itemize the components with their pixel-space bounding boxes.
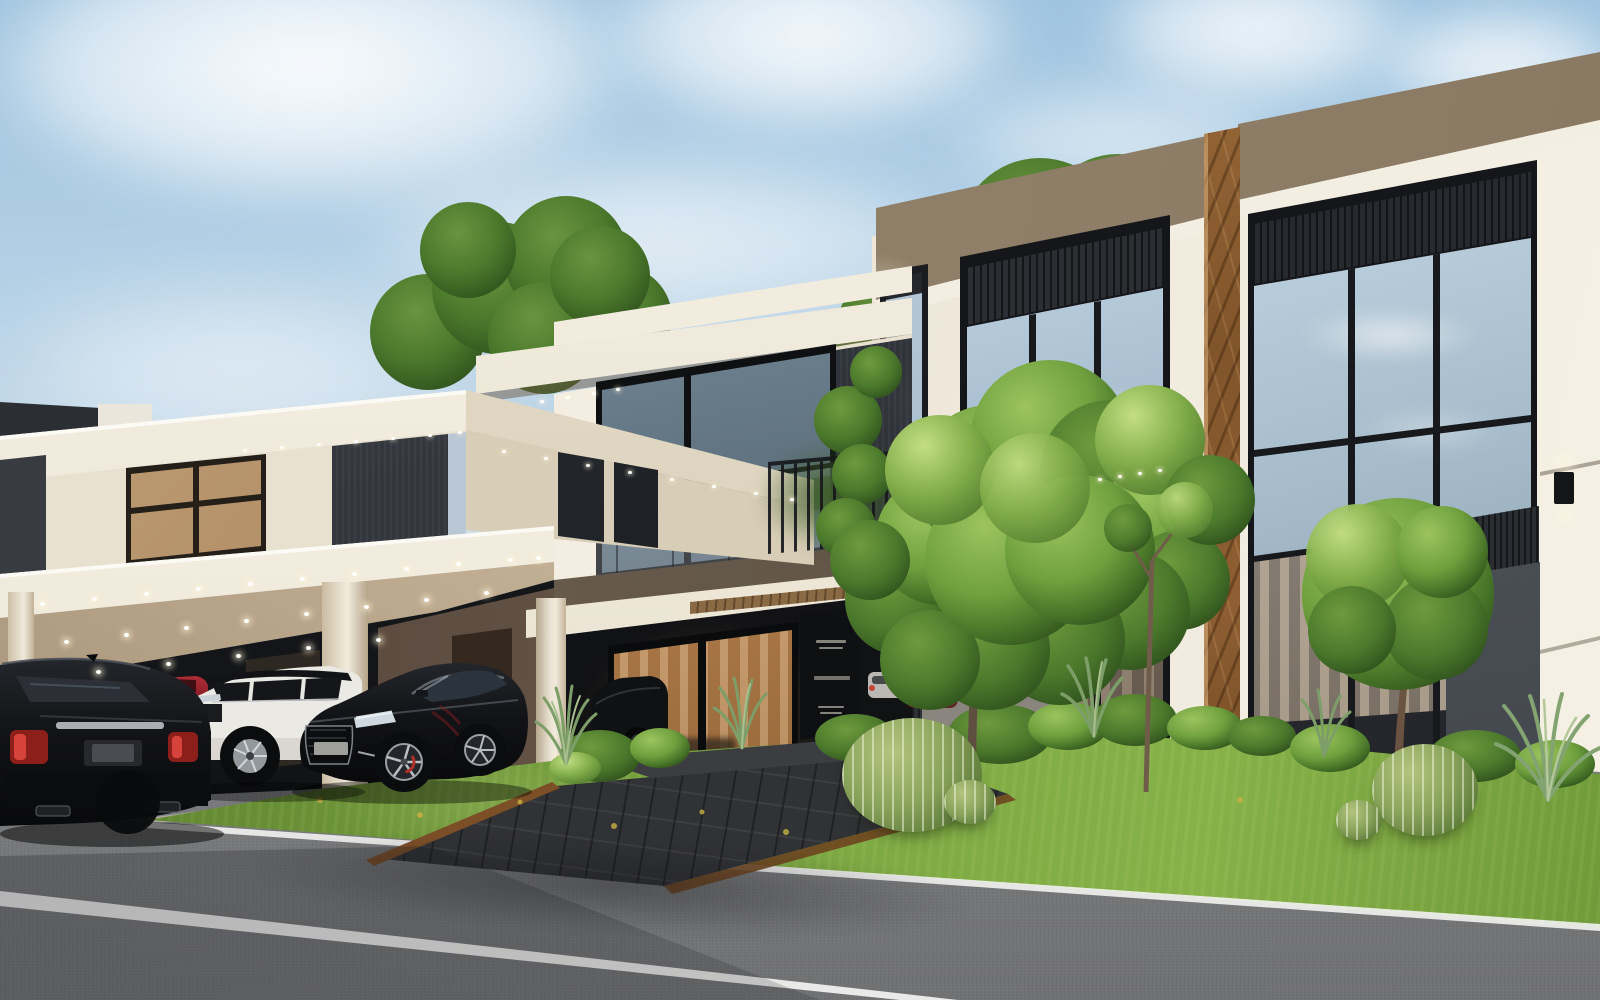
downlight: [1098, 478, 1102, 481]
coupe-body: [300, 663, 528, 782]
downlight: [616, 388, 620, 391]
downlight: [352, 572, 357, 576]
downlight: [248, 582, 253, 586]
downlight: [1158, 469, 1162, 472]
downlight: [670, 478, 674, 481]
downlight: [306, 646, 311, 650]
coupe-front-wheel: [374, 732, 434, 792]
carport-column: [322, 582, 368, 798]
downlight: [1138, 472, 1142, 475]
topiary-tree: [1302, 498, 1494, 772]
downlight: [166, 662, 171, 666]
coupe-headlight: [354, 712, 396, 728]
downlight: [40, 602, 45, 606]
carport-column: [8, 592, 34, 774]
downlight: [300, 577, 305, 581]
sconce-downlight: [1542, 500, 1586, 534]
sedan-taillight-right: [168, 732, 198, 762]
coupe-grille: [306, 726, 353, 764]
sedan-body: [0, 659, 211, 826]
suv-wheel: [220, 726, 280, 786]
coupe-intake: [356, 742, 396, 770]
downlight: [536, 556, 541, 560]
downlight: [144, 592, 149, 596]
cloud: [1330, 0, 1600, 144]
coupe-windows: [416, 670, 508, 702]
dark-parked-car: [592, 676, 668, 756]
downlight: [244, 619, 249, 623]
sedan-rear-window: [16, 676, 150, 702]
tree-canopy: [830, 360, 1255, 710]
coupe-rear-wheel: [454, 724, 506, 776]
downlight: [712, 485, 716, 488]
downlight: [376, 638, 381, 642]
black-coupe: [292, 663, 532, 804]
cloud: [880, 60, 1350, 220]
suv-grille: [188, 704, 222, 722]
black-luxury-sedan: [0, 654, 224, 847]
downlight: [790, 498, 794, 501]
barrel-cactus-large: [1372, 744, 1478, 836]
downlight: [92, 597, 97, 601]
slender-tree: [1104, 482, 1213, 792]
downlight: [196, 587, 201, 591]
downlight: [1118, 475, 1122, 478]
downlight: [502, 450, 506, 453]
sconce-uplight: [1542, 446, 1586, 480]
side-foliage: [814, 346, 902, 558]
downlight: [586, 464, 590, 467]
downlight: [404, 567, 409, 571]
downlight: [124, 633, 129, 637]
interior-plant-silhouette: [616, 696, 650, 772]
interior-furniture-silhouette: [640, 738, 736, 774]
downlight: [184, 626, 189, 630]
interior-glow: [580, 620, 840, 820]
downlight: [456, 562, 461, 566]
downlight: [484, 591, 489, 595]
wall-sconce: [1554, 472, 1574, 504]
red-sports-car: [108, 676, 344, 712]
downlight: [508, 558, 513, 562]
suv-headlight: [190, 694, 221, 703]
downlight: [754, 492, 758, 495]
downlight: [566, 396, 570, 399]
architectural-rendering: [0, 0, 1600, 1000]
car-shadow: [117, 794, 1102, 975]
barrel-cactus-small: [944, 780, 996, 824]
door-light-slit: [84, 648, 88, 742]
balcony-railing: [768, 450, 904, 554]
terrace-foliage: [756, 442, 916, 552]
coupe-plate: [314, 742, 348, 755]
downlight: [544, 457, 548, 460]
barrel-cactus-small: [1336, 800, 1382, 840]
downlight: [96, 670, 101, 674]
downlight: [364, 605, 369, 609]
downlight: [628, 471, 632, 474]
leaf-litter: [317, 797, 1243, 835]
sedan-plate: [92, 744, 134, 762]
downlight: [424, 598, 429, 602]
white-suv: [175, 666, 365, 802]
sedan-chrome-strip: [56, 722, 164, 729]
downlight: [304, 612, 309, 616]
downlight: [64, 640, 69, 644]
sedan-taillight-left: [10, 730, 48, 764]
canopy-column: [536, 598, 566, 784]
downlight: [592, 392, 596, 395]
downlight: [236, 654, 241, 658]
